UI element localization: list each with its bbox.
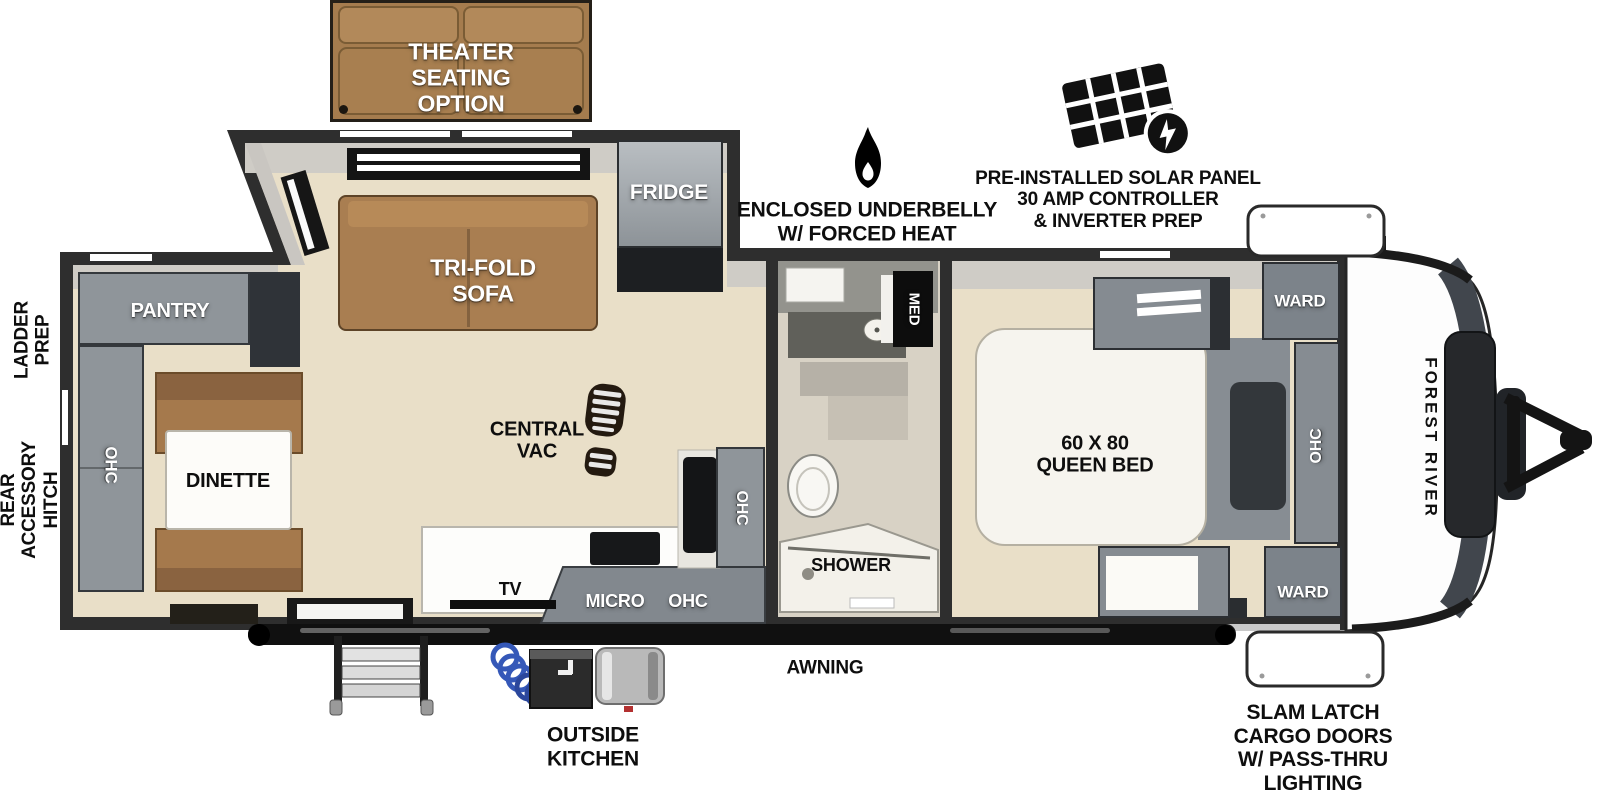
label-line: REAR [0,441,19,559]
fridge-label: FRIDGE [630,181,708,205]
med-label: MED [905,293,922,326]
outside-kitchen-unit [530,648,664,712]
cargo-door-bottom [1247,632,1383,686]
tv-unit [450,600,556,609]
toilet [788,455,838,517]
queen-bed-label: 60 X 80 QUEEN BED [1036,433,1153,478]
ohc-rear-label: OHC [101,446,120,483]
ladder-prep-label: LADDER PREP [12,301,55,379]
drawer-front [1137,290,1201,303]
kitchen-sink [683,457,717,553]
micro-counter [541,567,765,623]
label-line: TRI-FOLD [430,255,536,281]
central-vac-label: CENTRAL VAC [490,419,584,464]
ohc-bedroom-label: OHC [1308,429,1326,464]
sofa-foot [339,105,348,114]
tv-label: TV [499,579,522,599]
label-line: CARGO DOORS [1234,724,1393,748]
ohc-kitchen-label: OHC [732,491,750,526]
dresser [1098,546,1230,618]
entry-steps [330,636,433,715]
solar-panel-label: PRE-INSTALLED SOLAR PANEL 30 AMP CONTROL… [975,168,1261,232]
cargo-door-top [1248,206,1384,256]
label-line: OUTSIDE [547,723,639,747]
tri-fold-sofa-label: TRI-FOLD SOFA [430,255,536,307]
dinette-bench [155,528,303,592]
pantry-label: PANTRY [131,300,210,322]
label-line: W/ FORCED HEAT [737,222,997,246]
outside-kitchen-label: OUTSIDE KITCHEN [547,723,639,770]
theater-seating-label: THEATER SEATING OPTION [408,39,514,116]
label-line: PRE-INSTALLED SOLAR PANEL [975,168,1261,189]
rear-accessory-hitch-label: REAR ACCESSORY HITCH [0,441,62,559]
slam-latch-label: SLAM LATCH CARGO DOORS W/ PASS-THRU LIGH… [1234,701,1393,795]
enclosed-underbelly-label: ENCLOSED UNDERBELLY W/ FORCED HEAT [737,198,997,245]
hitch [1496,388,1592,500]
label-line: VAC [490,441,584,463]
dinette-label: DINETTE [186,470,270,492]
range-cooktop [590,532,660,565]
label-line: SEATING [408,65,514,91]
label-line: KITCHEN [547,747,639,771]
label-line: QUEEN BED [1036,455,1153,477]
label-line: THEATER [408,39,514,65]
awning-label: AWNING [787,657,864,678]
window-pane [357,165,580,171]
label-line: LADDER [12,301,33,379]
sofa-foot [573,105,582,114]
label-line: ENCLOSED UNDERBELLY [737,198,997,222]
propane-cover [1445,332,1495,537]
solar-panel-icon [1061,60,1194,174]
nightstand-side [1210,279,1228,348]
bed-pillow [1230,382,1286,510]
label-line: 60 X 80 [1036,433,1153,455]
window-pane [357,154,580,161]
nightstand [1093,277,1230,350]
label-line: PREP [33,301,54,379]
fridge-base-cabinet [617,248,723,292]
label-line: & INVERTER PREP [975,211,1261,232]
shower-label: SHOWER [811,555,891,575]
forest-river-brand: FOREST RIVER [1421,357,1440,519]
micro-label: MICRO [586,591,645,611]
drawer-front [1106,556,1198,610]
rear-wardrobe-cabinet [250,272,300,367]
drawer-front [1137,304,1201,316]
label-line: HITCH [41,441,62,559]
living-window-strip [347,148,590,180]
awning-bar [248,624,1236,646]
flame-icon [855,127,881,188]
label-line: LIGHTING [1234,772,1393,796]
label-line: W/ PASS-THRU [1234,748,1393,772]
sofa-back [348,201,588,227]
ward-top-label: WARD [1274,291,1325,310]
label-line: ACCESSORY [19,441,40,559]
label-line: CENTRAL [490,419,584,441]
ward-bottom-label: WARD [1277,582,1328,601]
label-line: 30 AMP CONTROLLER [975,189,1261,210]
bench-back [157,568,301,590]
rv-floorplan: LADDER PREP REAR ACCESSORY HITCH ENCLOSE… [0,0,1600,796]
label-line: SLAM LATCH [1234,701,1393,725]
bench-back [157,374,301,400]
label-line: OPTION [408,91,514,117]
ohc-counter-label: OHC [668,591,707,611]
label-line: SOFA [430,281,536,307]
